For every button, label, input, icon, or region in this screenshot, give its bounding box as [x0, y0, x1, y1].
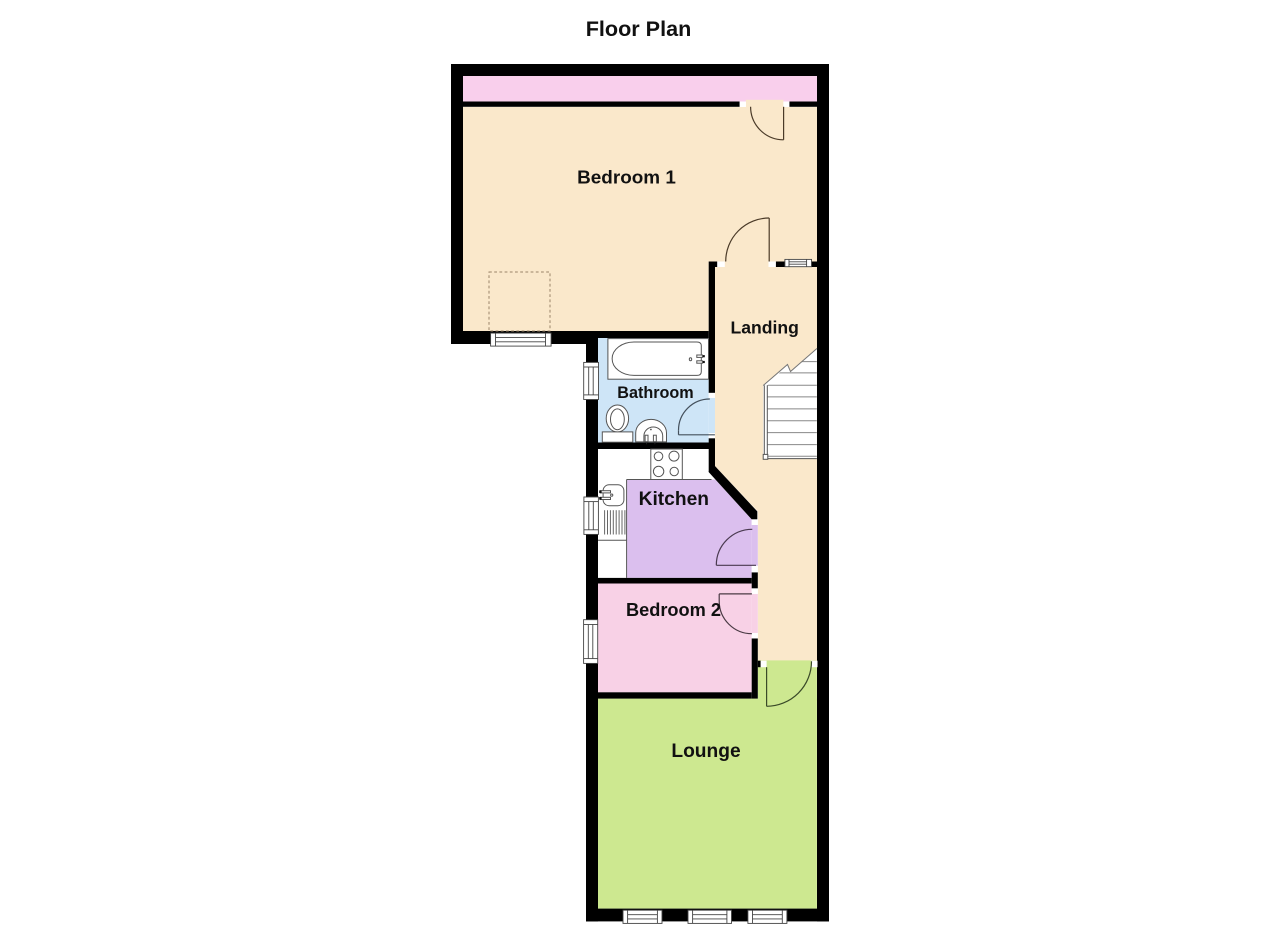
svg-text:Bathroom: Bathroom [617, 384, 693, 402]
svg-text:Bedroom 1: Bedroom 1 [577, 168, 676, 189]
svg-text:Lounge: Lounge [671, 741, 741, 762]
svg-text:Landing: Landing [730, 318, 798, 338]
svg-text:Kitchen: Kitchen [639, 489, 709, 510]
svg-text:Bedroom 2: Bedroom 2 [626, 600, 721, 620]
svg-text:Floor Plan: Floor Plan [586, 16, 692, 41]
